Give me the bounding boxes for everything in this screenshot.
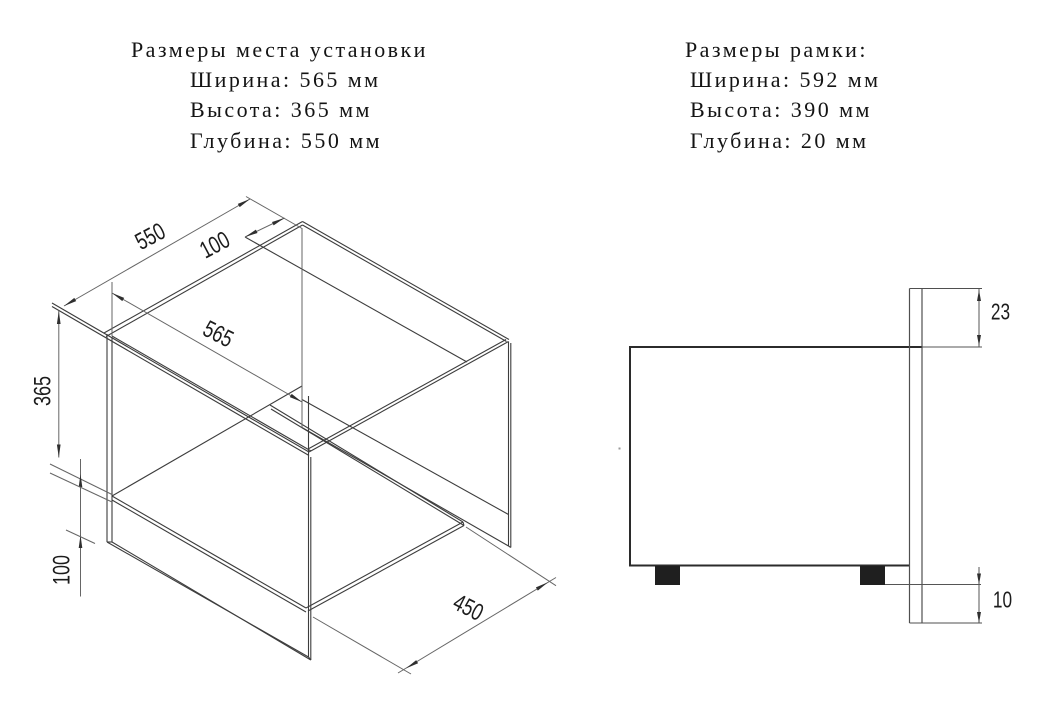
svg-text:100: 100	[196, 227, 235, 264]
svg-text:550: 550	[131, 218, 170, 255]
svg-text:10: 10	[993, 588, 1012, 613]
svg-text:365: 365	[30, 376, 56, 406]
svg-text:450: 450	[449, 590, 488, 627]
svg-text:23: 23	[991, 300, 1010, 325]
svg-text:565: 565	[199, 316, 238, 353]
svg-text:100: 100	[49, 555, 75, 585]
